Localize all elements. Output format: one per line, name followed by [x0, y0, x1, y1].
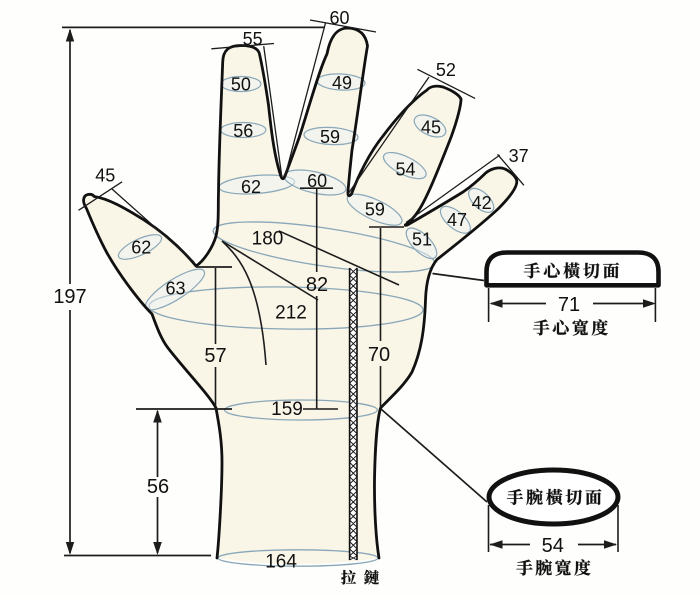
svg-text:71: 71	[558, 294, 580, 316]
svg-text:59: 59	[365, 199, 385, 219]
svg-text:55: 55	[243, 29, 263, 49]
svg-text:37: 37	[509, 146, 529, 166]
svg-text:52: 52	[436, 60, 456, 80]
svg-text:212: 212	[275, 303, 307, 324]
svg-text:54: 54	[542, 535, 564, 557]
svg-text:70: 70	[368, 344, 390, 366]
svg-text:82: 82	[306, 274, 328, 296]
svg-text:45: 45	[95, 166, 115, 186]
svg-text:59: 59	[320, 127, 340, 147]
svg-text:62: 62	[241, 177, 261, 197]
svg-text:45: 45	[421, 118, 441, 138]
svg-text:50: 50	[231, 75, 251, 95]
svg-text:197: 197	[53, 286, 86, 308]
svg-text:159: 159	[271, 399, 303, 420]
svg-text:49: 49	[332, 73, 352, 93]
svg-text:60: 60	[329, 8, 349, 28]
svg-text:56: 56	[233, 121, 253, 141]
svg-text:63: 63	[165, 279, 185, 299]
svg-text:42: 42	[472, 193, 492, 213]
svg-text:57: 57	[204, 345, 226, 367]
svg-text:56: 56	[147, 476, 169, 498]
svg-text:51: 51	[412, 229, 432, 249]
svg-text:47: 47	[447, 210, 467, 230]
svg-text:60: 60	[307, 171, 327, 191]
svg-text:62: 62	[131, 237, 151, 257]
svg-text:164: 164	[265, 551, 297, 572]
svg-text:54: 54	[395, 159, 415, 179]
svg-text:180: 180	[252, 229, 284, 250]
